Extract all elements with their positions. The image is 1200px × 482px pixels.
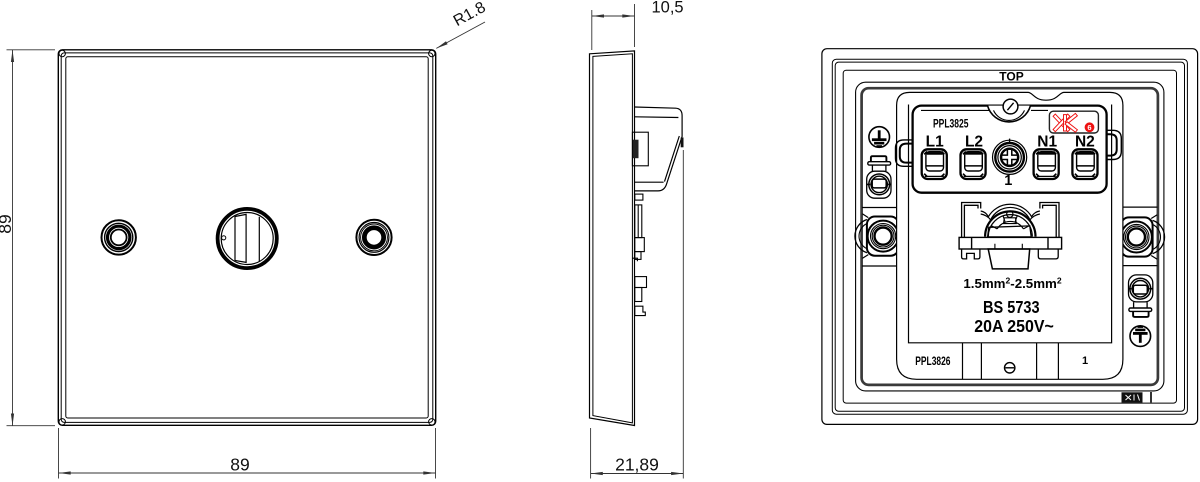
svg-text:89: 89	[0, 214, 15, 233]
svg-text:1.5mm2-2.5mm2: 1.5mm2-2.5mm2	[963, 275, 1061, 291]
svg-text:89: 89	[230, 455, 249, 475]
svg-text:20A 250V~: 20A 250V~	[974, 316, 1054, 336]
svg-text:10,5: 10,5	[652, 0, 684, 17]
svg-text:PPL3825: PPL3825	[933, 117, 969, 131]
svg-text:N2: N2	[1075, 134, 1095, 151]
svg-text:BS 5733: BS 5733	[983, 297, 1040, 317]
svg-text:21,89: 21,89	[615, 455, 659, 475]
svg-text:N1: N1	[1037, 134, 1057, 151]
svg-text:L1: L1	[926, 134, 944, 151]
svg-text:L2: L2	[965, 134, 983, 151]
svg-text:TOP: TOP	[999, 70, 1023, 84]
svg-text:1: 1	[1004, 173, 1012, 189]
svg-text:PPL3826: PPL3826	[915, 354, 951, 368]
svg-text:1: 1	[1082, 355, 1088, 367]
svg-text:6: 6	[1087, 123, 1091, 132]
